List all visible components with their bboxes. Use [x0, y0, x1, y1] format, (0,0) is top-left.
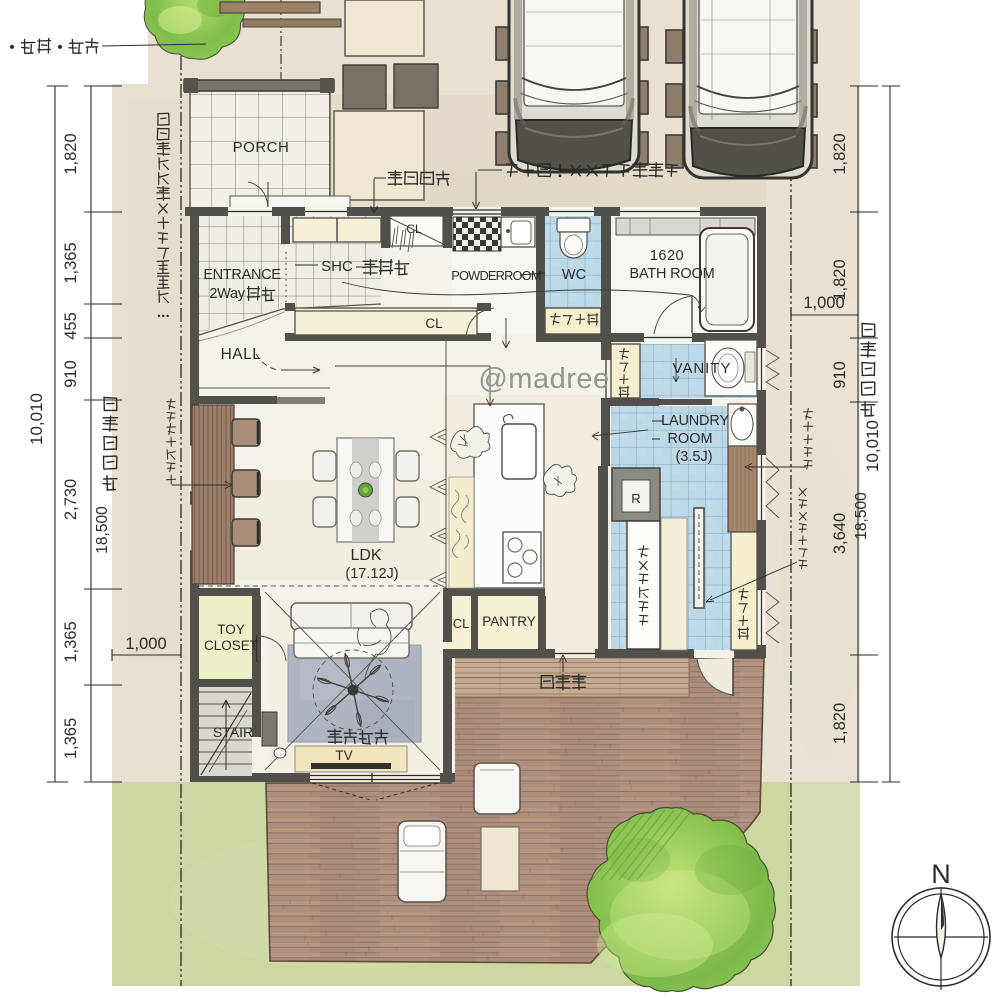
svg-text:R: R [631, 491, 640, 506]
svg-text:1,365: 1,365 [62, 621, 80, 662]
svg-text:LDK: LDK [350, 547, 381, 564]
svg-text:455: 455 [62, 312, 80, 340]
svg-text:CL: CL [453, 616, 470, 631]
svg-text:STAIR: STAIR [213, 724, 253, 740]
svg-text:TV: TV [335, 748, 352, 763]
svg-text:910: 910 [62, 360, 80, 388]
svg-text:N: N [931, 859, 951, 889]
svg-text:2,730: 2,730 [62, 479, 80, 520]
svg-text:1,000: 1,000 [803, 294, 844, 312]
svg-text:HALL: HALL [221, 346, 262, 363]
svg-text:TOY: TOY [217, 622, 245, 637]
svg-text:18,500: 18,500 [853, 492, 870, 540]
svg-text:18,500: 18,500 [94, 506, 111, 554]
svg-text:BATH ROOM: BATH ROOM [630, 266, 715, 282]
svg-text:PANTRY: PANTRY [482, 614, 536, 629]
svg-text:1620: 1620 [650, 248, 684, 264]
svg-text:LAUNDRY: LAUNDRY [661, 413, 729, 429]
svg-text:SHC: SHC [321, 258, 353, 275]
svg-text:(3.5J): (3.5J) [675, 449, 712, 465]
svg-text:1,365: 1,365 [62, 718, 80, 759]
svg-text:1,820: 1,820 [831, 703, 849, 744]
svg-text:1,365: 1,365 [62, 242, 80, 283]
svg-text:CL: CL [425, 316, 443, 331]
svg-text:3,640: 3,640 [831, 513, 849, 554]
svg-text:10,010: 10,010 [863, 420, 882, 472]
svg-text:2Way: 2Way [209, 286, 245, 302]
svg-text:ROOM: ROOM [667, 431, 712, 447]
svg-text:1,820: 1,820 [62, 133, 80, 174]
svg-text:(17.12J): (17.12J) [345, 566, 398, 582]
svg-text:@madree: @madree [478, 363, 609, 395]
svg-text:ENTRANCE: ENTRANCE [203, 267, 281, 283]
svg-text:CL: CL [406, 222, 422, 236]
svg-text:VANITY: VANITY [672, 360, 731, 377]
svg-text:1,820: 1,820 [831, 133, 849, 174]
svg-text:10,010: 10,010 [27, 393, 46, 445]
svg-text:WC: WC [562, 267, 586, 283]
svg-text:PORCH: PORCH [233, 139, 290, 156]
svg-text:1,000: 1,000 [125, 635, 166, 653]
svg-text:POWDERROOM: POWDERROOM [451, 268, 541, 283]
svg-text:910: 910 [831, 361, 849, 389]
svg-text:CLOSET: CLOSET [204, 638, 258, 653]
